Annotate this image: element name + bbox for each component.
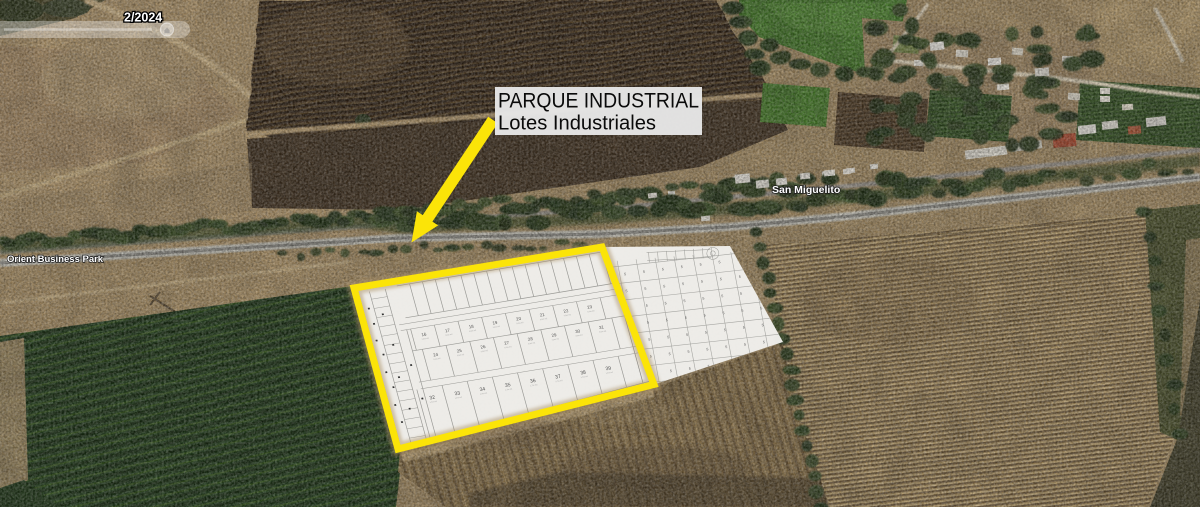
svg-text:5: 5 xyxy=(689,367,691,371)
svg-text:5: 5 xyxy=(662,267,664,271)
svg-text:5: 5 xyxy=(725,345,727,349)
svg-text:5: 5 xyxy=(648,338,650,342)
svg-text:5: 5 xyxy=(646,304,648,308)
svg-text:2/2024: 2/2024 xyxy=(124,11,162,25)
svg-text:5: 5 xyxy=(721,294,723,298)
svg-text:5: 5 xyxy=(668,352,670,356)
svg-text:5: 5 xyxy=(681,265,683,269)
svg-text:5: 5 xyxy=(643,270,645,274)
svg-text:5: 5 xyxy=(647,321,649,325)
svg-text:5: 5 xyxy=(704,313,706,317)
svg-text:5: 5 xyxy=(666,318,668,322)
svg-text:5: 5 xyxy=(670,369,672,373)
svg-text:5: 5 xyxy=(718,260,720,264)
svg-text:5: 5 xyxy=(739,275,741,279)
svg-text:5: 5 xyxy=(760,306,762,310)
svg-text:5: 5 xyxy=(700,263,702,267)
svg-text:5: 5 xyxy=(701,280,703,284)
svg-text:5: 5 xyxy=(740,292,742,296)
svg-text:5: 5 xyxy=(644,287,646,291)
svg-text:5: 5 xyxy=(705,330,707,334)
svg-text:5: 5 xyxy=(624,272,626,276)
svg-text:5: 5 xyxy=(741,309,743,313)
svg-text:Lotes Industriales: Lotes Industriales xyxy=(498,112,656,135)
svg-text:5: 5 xyxy=(720,277,722,281)
svg-text:5: 5 xyxy=(702,297,704,301)
svg-text:5: 5 xyxy=(685,316,687,320)
svg-text:5: 5 xyxy=(686,333,688,337)
svg-text:5: 5 xyxy=(663,284,665,288)
svg-text:San Miguelito: San Miguelito xyxy=(772,184,840,196)
svg-text:5: 5 xyxy=(664,301,666,305)
svg-text:5: 5 xyxy=(761,323,763,327)
svg-text:5: 5 xyxy=(706,347,708,351)
svg-text:5: 5 xyxy=(683,299,685,303)
svg-text:5: 5 xyxy=(763,340,765,344)
svg-text:5: 5 xyxy=(722,311,724,315)
svg-text:5: 5 xyxy=(667,335,669,339)
svg-text:PARQUE INDUSTRIAL: PARQUE INDUSTRIAL xyxy=(498,90,699,113)
svg-text:Orient Business Park: Orient Business Park xyxy=(7,254,104,265)
svg-text:5: 5 xyxy=(744,343,746,347)
svg-text:5: 5 xyxy=(687,350,689,354)
svg-text:5: 5 xyxy=(724,328,726,332)
svg-text:5: 5 xyxy=(743,326,745,330)
svg-text:5: 5 xyxy=(682,282,684,286)
